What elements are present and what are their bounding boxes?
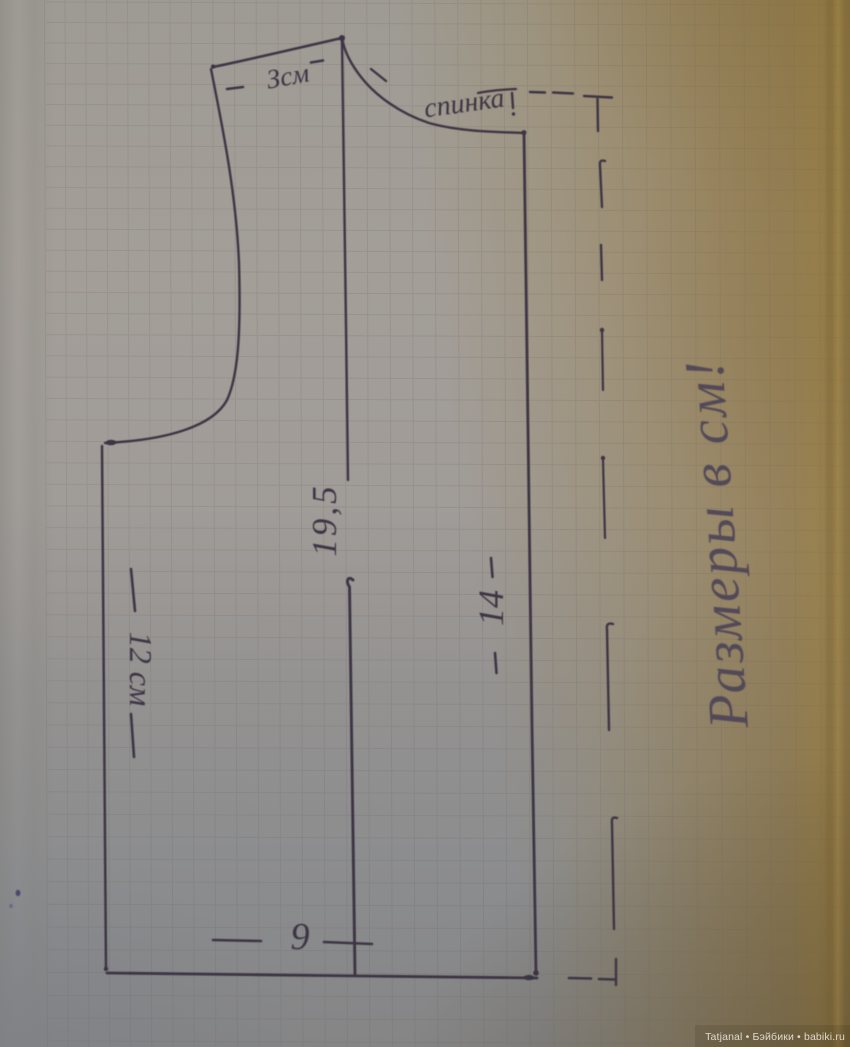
svg-text:9: 9 <box>291 916 310 958</box>
svg-text:12 см: 12 см <box>123 632 159 707</box>
svg-text:Зсм: Зсм <box>264 58 311 95</box>
svg-text:Размеры в см!: Размеры в см! <box>673 356 761 732</box>
svg-text:19,5: 19,5 <box>305 483 344 556</box>
svg-text:14: 14 <box>471 590 511 626</box>
